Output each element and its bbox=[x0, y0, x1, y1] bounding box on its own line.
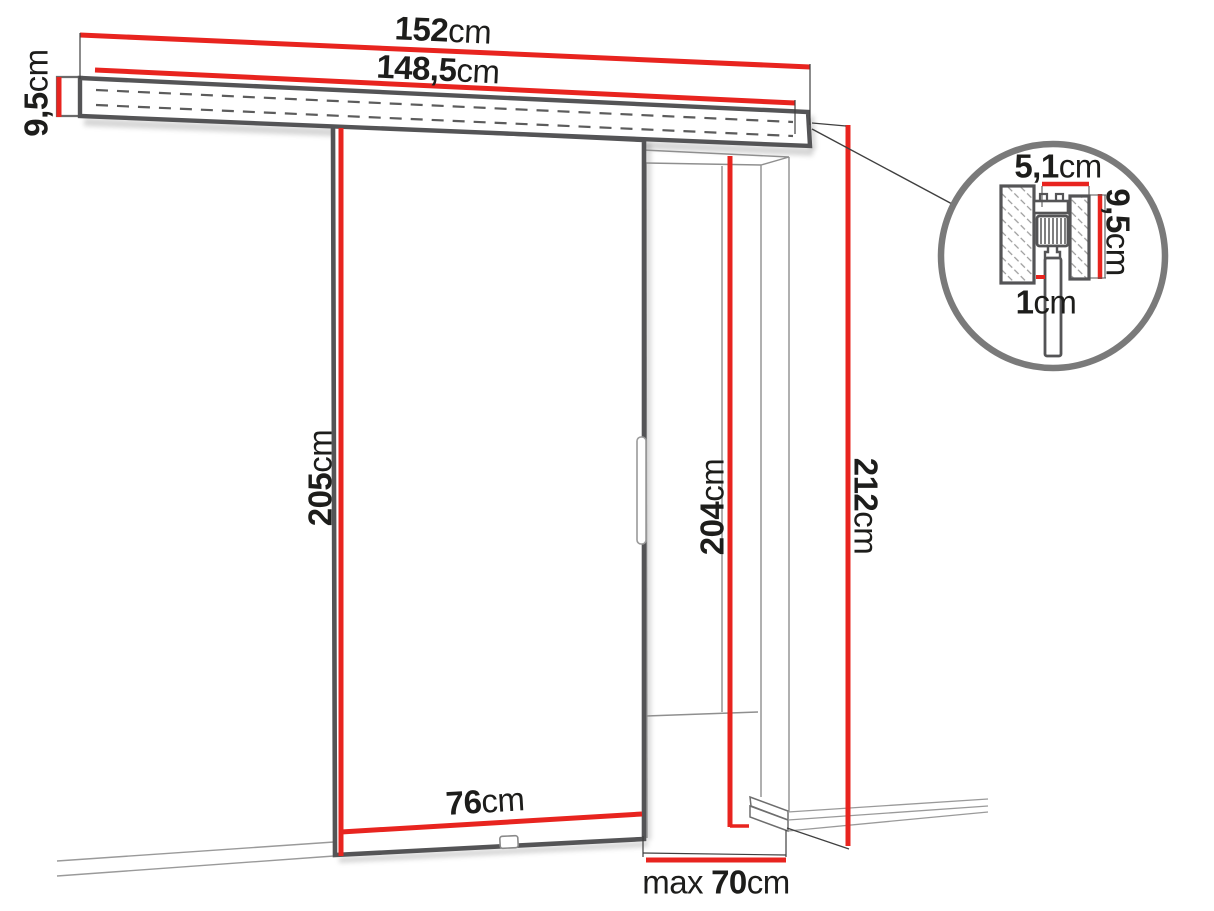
sliding-door-dimension-diagram: 152cm 148,5cm 9,5cm 205cm 204cm 212cm 76… bbox=[0, 0, 1214, 911]
dim-unit: cm bbox=[456, 51, 501, 90]
dim-value: 152 bbox=[394, 9, 449, 48]
dim-value: 1 bbox=[1016, 284, 1034, 321]
dim-value: 204 bbox=[694, 502, 731, 556]
dim-unit: cm bbox=[747, 864, 790, 901]
dim-value: 5,1 bbox=[1014, 148, 1058, 185]
dim-label-detail-track-width: 5,1cm bbox=[1014, 150, 1101, 183]
skirting-left bbox=[57, 842, 334, 876]
dim-label-detail-gap: 1cm bbox=[1016, 286, 1077, 319]
door-handle bbox=[637, 437, 646, 544]
wall-block-right-hatched bbox=[1070, 196, 1089, 279]
roller-ribs bbox=[1041, 218, 1065, 244]
dim-value: 148,5 bbox=[376, 48, 458, 89]
dim-unit: cm bbox=[848, 511, 885, 554]
dim-value: 70 bbox=[711, 864, 747, 901]
dim-label-opening-max-width: max70cm bbox=[642, 866, 790, 899]
detail-leader-line bbox=[812, 129, 954, 205]
dim-unit: cm bbox=[302, 430, 339, 473]
dim-label-door-height: 205cm bbox=[304, 430, 337, 527]
dim-label-door-width: 76cm bbox=[445, 782, 526, 820]
dim-unit: cm bbox=[1100, 233, 1137, 276]
dim-value: 212 bbox=[848, 458, 885, 512]
dim-unit: cm bbox=[480, 780, 525, 819]
dim-label-overall-height: 212cm bbox=[850, 458, 883, 555]
dim-unit: cm bbox=[694, 459, 731, 502]
diagram-canvas bbox=[0, 0, 1214, 911]
sliding-door-panel bbox=[333, 125, 646, 855]
frame-reveal-top-line bbox=[761, 157, 789, 165]
dim-value: 205 bbox=[302, 473, 339, 527]
dim-value: 9,5 bbox=[18, 92, 55, 136]
dim-label-detail-track-height: 9,5cm bbox=[1102, 188, 1135, 275]
track-bracket bbox=[1034, 201, 1068, 213]
dim-unit: cm bbox=[1059, 148, 1102, 185]
wall-block-left-hatched bbox=[1001, 186, 1034, 283]
dim-label-opening-height: 204cm bbox=[696, 459, 729, 556]
dim-prefix: max bbox=[642, 864, 703, 901]
frame-inner-top-line bbox=[646, 163, 761, 165]
dim-label-rail-profile-height: 9,5cm bbox=[20, 49, 53, 136]
dim-value: 76 bbox=[445, 783, 483, 822]
skirting-right bbox=[788, 799, 988, 831]
floor-guide bbox=[500, 836, 519, 849]
opening-floor-line bbox=[646, 712, 758, 716]
dim-unit: cm bbox=[1033, 284, 1076, 321]
dim-unit: cm bbox=[447, 12, 492, 51]
plinth bbox=[750, 797, 788, 831]
dim-value: 9,5 bbox=[1100, 188, 1137, 232]
dim-unit: cm bbox=[18, 49, 55, 92]
dim-label-rail-outer-width: 152cm bbox=[394, 11, 492, 48]
dim-label-rail-inner-width: 148,5cm bbox=[376, 50, 501, 89]
